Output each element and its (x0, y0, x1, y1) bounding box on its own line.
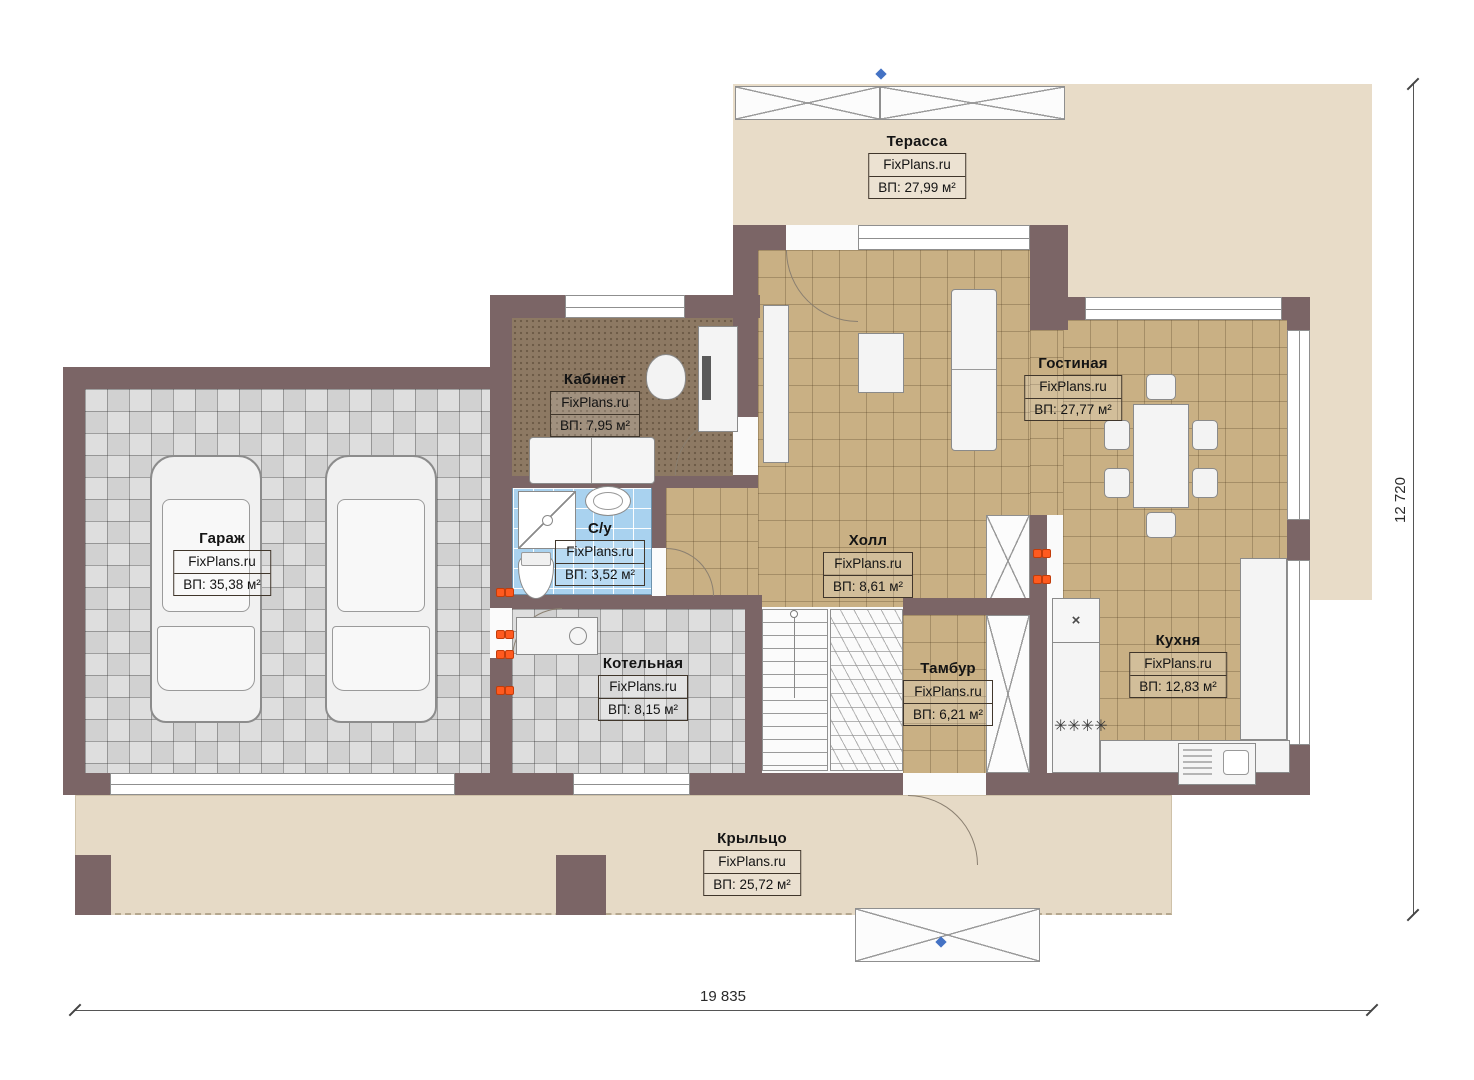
stairs-guide-start (790, 610, 798, 618)
room-area: ВП: 35,38 м² (174, 573, 270, 596)
wall-segment (490, 295, 512, 795)
room-name: Тамбур (903, 660, 993, 677)
door-opening (903, 773, 986, 795)
dimension-line-bottom (75, 1010, 1372, 1011)
room-area: ВП: 27,77 м² (1025, 398, 1121, 421)
wall-segment (63, 773, 111, 795)
door-opening (786, 225, 858, 250)
hall-table (858, 333, 904, 393)
stairs-guide-line (794, 614, 795, 698)
floor-plan: × ✳✳✳✳ Терасса FixPlans.ru ВП: 27,99 м² … (0, 0, 1474, 1080)
wall-segment (63, 367, 512, 389)
room-name: Гостиная (1024, 355, 1122, 372)
room-info-box: FixPlans.ru ВП: 27,99 м² (868, 153, 966, 199)
office-sofa (529, 437, 655, 484)
room-name: Крыльцо (703, 830, 801, 847)
room-area: ВП: 27,99 м² (869, 176, 965, 199)
room-info-box: FixPlans.ru ВП: 8,15 м² (598, 675, 688, 721)
dining-chair (1146, 512, 1176, 538)
stairs-flight (762, 609, 828, 771)
room-info-box: FixPlans.ru ВП: 6,21 м² (903, 680, 993, 726)
survey-marker-icon (875, 68, 886, 79)
room-label-garage: Гараж FixPlans.ru ВП: 35,38 м² (173, 530, 271, 596)
room-info-box: FixPlans.ru ВП: 27,77 м² (1024, 375, 1122, 421)
radiator-indicator-icon (496, 686, 513, 694)
window (565, 295, 685, 318)
room-area: ВП: 12,83 м² (1130, 675, 1226, 698)
room-area: ВП: 25,72 м² (704, 873, 800, 896)
monitor-icon (702, 356, 711, 400)
brand-watermark: FixPlans.ru (1025, 376, 1121, 398)
brand-watermark: FixPlans.ru (599, 676, 687, 698)
room-label-terrace: Терасса FixPlans.ru ВП: 27,99 м² (868, 133, 966, 199)
room-name: С/у (555, 520, 645, 537)
room-area: ВП: 8,61 м² (824, 575, 912, 598)
door-opening (652, 548, 666, 596)
appliance-cross-glyph: × (1072, 612, 1081, 629)
dining-table (1133, 404, 1189, 508)
room-name: Холл (823, 532, 913, 549)
window (1287, 330, 1310, 520)
window (1085, 297, 1282, 320)
radiator-indicator-icon (496, 650, 513, 658)
kitchen-sink-icon (1178, 743, 1256, 785)
brand-watermark: FixPlans.ru (869, 154, 965, 176)
brand-watermark: FixPlans.ru (904, 681, 992, 703)
room-name: Кабинет (550, 371, 640, 388)
room-info-box: FixPlans.ru ВП: 25,72 м² (703, 850, 801, 896)
dining-chair (1104, 468, 1130, 498)
wardrobe (986, 515, 1030, 607)
radiator-indicator-icon (1033, 549, 1050, 557)
wall-segment (63, 367, 85, 795)
living-sofa (951, 289, 997, 451)
room-label-living: Гостиная FixPlans.ru ВП: 27,77 м² (1024, 355, 1122, 421)
porch-area (75, 795, 1172, 915)
room-area: ВП: 6,21 м² (904, 703, 992, 726)
room-name: Терасса (868, 133, 966, 150)
room-area: ВП: 3,52 м² (556, 563, 644, 586)
room-info-box: FixPlans.ru ВП: 35,38 м² (173, 550, 271, 596)
wall-segment (745, 595, 762, 773)
kitchen-counter (1240, 558, 1287, 740)
dimension-width-label: 19 835 (700, 988, 746, 1005)
room-label-office: Кабинет FixPlans.ru ВП: 7,95 м² (550, 371, 640, 437)
room-name: Котельная (598, 655, 688, 672)
room-area: ВП: 7,95 м² (551, 414, 639, 437)
stove-burners-icon: ✳✳✳✳ (1054, 688, 1098, 766)
window (858, 225, 1030, 250)
radiator-indicator-icon (496, 588, 513, 596)
porch-pillar (75, 855, 111, 915)
terrace-steps (735, 86, 880, 120)
brand-watermark: FixPlans.ru (551, 392, 639, 414)
dimension-depth-label: 12 720 (1392, 450, 1412, 550)
room-area: ВП: 8,15 м² (599, 698, 687, 721)
brand-watermark: FixPlans.ru (556, 541, 644, 563)
brand-watermark: FixPlans.ru (704, 851, 800, 873)
terrace-steps (880, 86, 1065, 120)
room-label-porch: Крыльцо FixPlans.ru ВП: 25,72 м² (703, 830, 801, 896)
radiator-indicator-icon (1033, 575, 1050, 583)
office-chair (646, 354, 686, 400)
brand-watermark: FixPlans.ru (1130, 653, 1226, 675)
room-label-vestibule: Тамбур FixPlans.ru ВП: 6,21 м² (903, 660, 993, 726)
wall-segment (903, 598, 1032, 615)
stairs-winders (830, 609, 903, 771)
boiler-unit (516, 617, 598, 655)
room-info-box: FixPlans.ru ВП: 12,83 м² (1129, 652, 1227, 698)
radiator-indicator-icon (496, 630, 513, 638)
dining-chair (1192, 420, 1218, 450)
garage-gate (110, 773, 455, 795)
room-label-kitchen: Кухня FixPlans.ru ВП: 12,83 м² (1129, 632, 1227, 698)
sink-icon (585, 486, 631, 516)
window (573, 773, 690, 795)
room-info-box: FixPlans.ru ВП: 7,95 м² (550, 391, 640, 437)
room-label-bathroom: С/у FixPlans.ru ВП: 3,52 м² (555, 520, 645, 586)
window (1287, 560, 1310, 745)
room-info-box: FixPlans.ru ВП: 3,52 м² (555, 540, 645, 586)
brand-watermark: FixPlans.ru (174, 551, 270, 573)
appliance-icon: × (1052, 598, 1100, 643)
room-label-hall: Холл FixPlans.ru ВП: 8,61 м² (823, 532, 913, 598)
dining-chair (1192, 468, 1218, 498)
room-label-boiler: Котельная FixPlans.ru ВП: 8,15 м² (598, 655, 688, 721)
dining-chair (1146, 374, 1176, 400)
room-name: Гараж (173, 530, 271, 547)
room-name: Кухня (1129, 632, 1227, 649)
dining-chair (1104, 420, 1130, 450)
brand-watermark: FixPlans.ru (824, 553, 912, 575)
hall-cabinet (763, 305, 789, 463)
porch-entry-steps (855, 908, 1040, 962)
car-top-view (325, 455, 437, 723)
porch-pillar (556, 855, 606, 915)
room-info-box: FixPlans.ru ВП: 8,61 м² (823, 552, 913, 598)
dimension-line-right (1413, 84, 1414, 915)
